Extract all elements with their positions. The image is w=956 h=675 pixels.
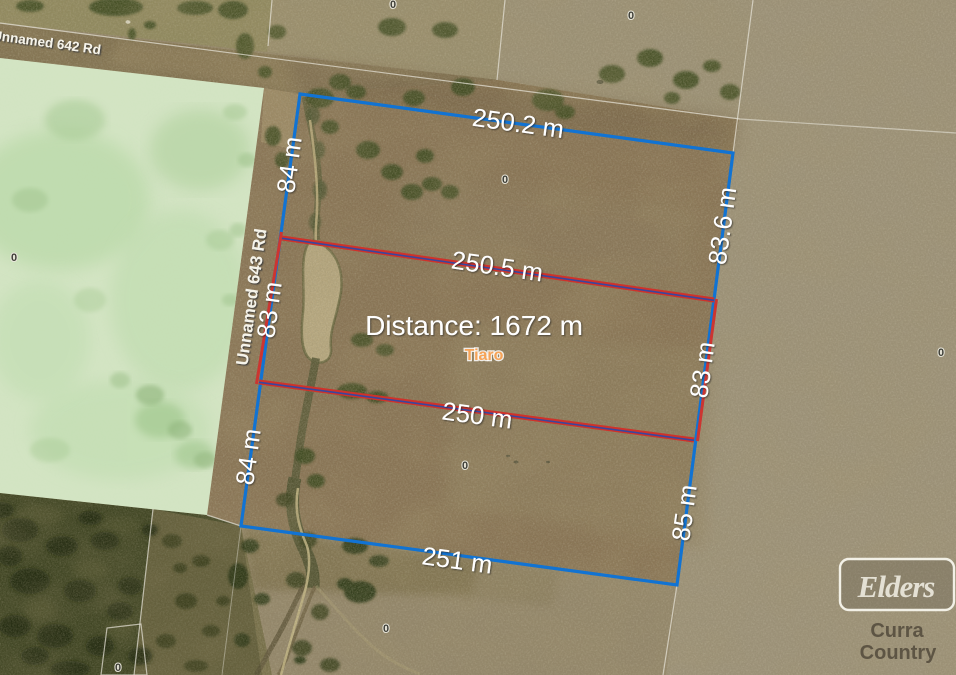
svg-text:0: 0 [390,0,396,11]
svg-text:Elders: Elders [857,569,936,604]
svg-text:0: 0 [502,174,508,186]
svg-text:0: 0 [938,347,944,359]
svg-text:Tiaro: Tiaro [465,347,504,364]
svg-text:Curra: Curra [870,620,924,642]
svg-text:Country: Country [860,642,938,664]
svg-text:0: 0 [11,252,17,264]
svg-text:0: 0 [115,662,121,674]
svg-text:Distance: 1672 m: Distance: 1672 m [365,310,583,341]
svg-text:0: 0 [383,623,389,635]
svg-text:0: 0 [462,460,468,472]
svg-text:0: 0 [628,10,634,22]
